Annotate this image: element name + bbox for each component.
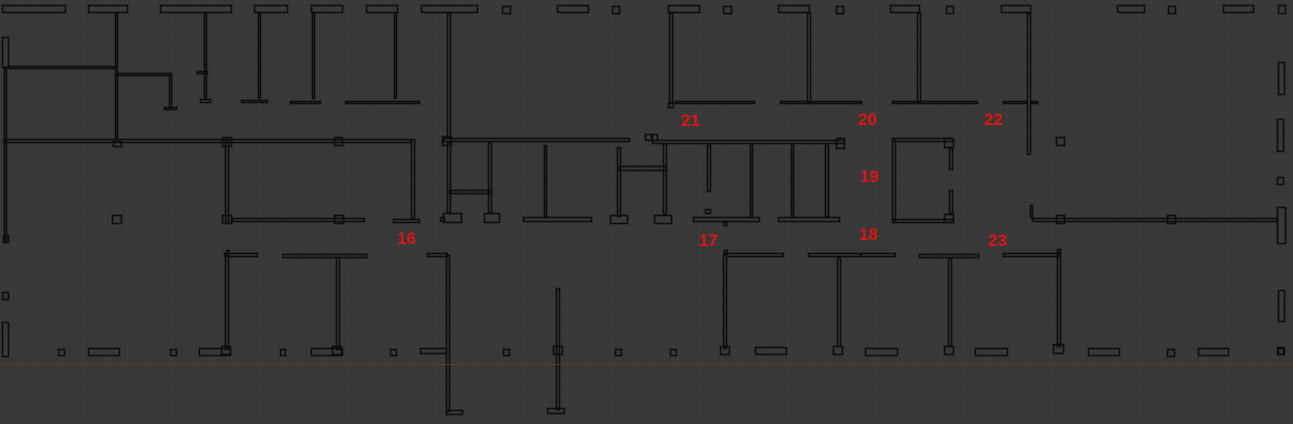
room-label-19: 19	[860, 167, 879, 186]
room-label-17: 17	[699, 231, 718, 250]
room-label-16: 16	[397, 229, 416, 248]
room-label-22: 22	[984, 110, 1003, 129]
room-label-23: 23	[988, 231, 1007, 250]
room-label-21: 21	[681, 111, 700, 130]
cad-viewport: 1617181920212223	[0, 0, 1293, 424]
room-label-20: 20	[858, 110, 877, 129]
grid-overlay	[0, 0, 1293, 424]
room-label-18: 18	[859, 225, 878, 244]
floorplan-canvas[interactable]: 1617181920212223	[0, 0, 1293, 424]
